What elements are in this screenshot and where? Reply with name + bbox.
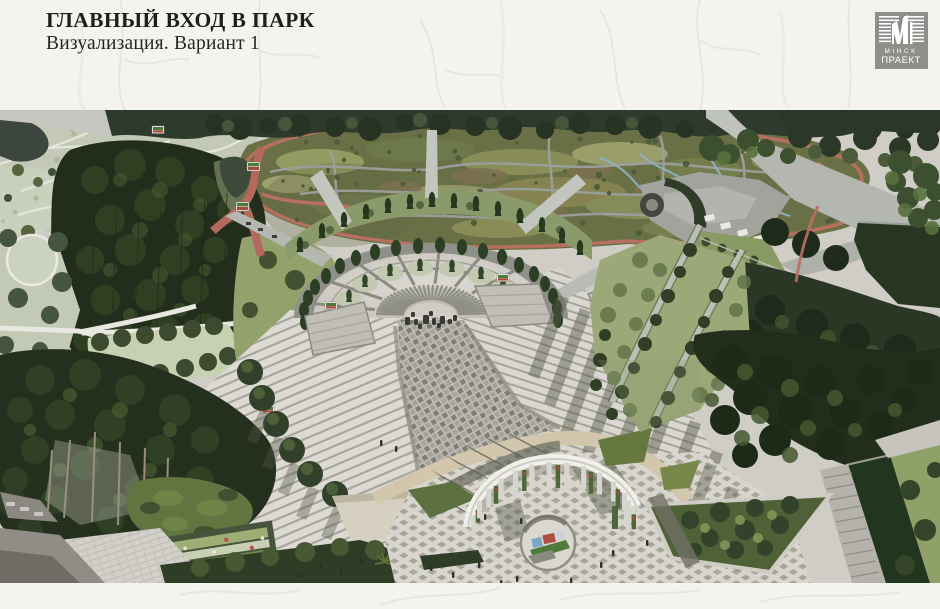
svg-text:МІНСК: МІНСК xyxy=(885,48,918,55)
svg-text:ПРАЕКТ: ПРАЕКТ xyxy=(881,55,921,66)
